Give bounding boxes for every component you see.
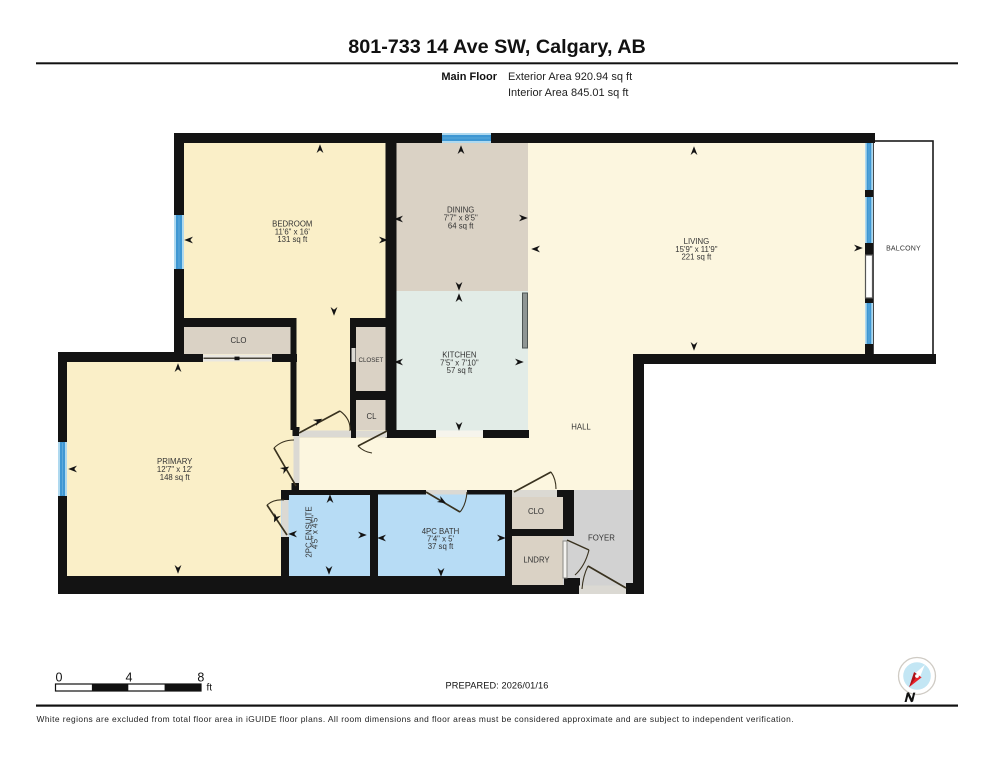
- svg-text:37 sq ft: 37 sq ft: [428, 542, 454, 551]
- svg-text:CLO: CLO: [528, 507, 544, 516]
- svg-text:8: 8: [197, 670, 204, 684]
- svg-text:PREPARED: 2026/01/16: PREPARED: 2026/01/16: [446, 681, 549, 691]
- svg-text:Interior Area 845.01 sq ft: Interior Area 845.01 sq ft: [508, 87, 628, 99]
- svg-text:221 sq ft: 221 sq ft: [681, 253, 712, 262]
- svg-text:ft: ft: [207, 683, 213, 694]
- svg-text:HALL: HALL: [571, 423, 591, 432]
- svg-text:CLO: CLO: [230, 336, 246, 345]
- svg-text:4'5" x 4'5": 4'5" x 4'5": [311, 515, 320, 549]
- svg-text:Exterior Area 920.94 sq ft: Exterior Area 920.94 sq ft: [508, 71, 632, 83]
- svg-text:CLOSET: CLOSET: [359, 357, 384, 364]
- svg-text:148 sq ft: 148 sq ft: [160, 473, 191, 482]
- svg-text:64 sq ft: 64 sq ft: [448, 222, 474, 231]
- svg-text:CL: CL: [367, 412, 378, 421]
- svg-text:131 sq ft: 131 sq ft: [277, 235, 308, 244]
- svg-text:0: 0: [56, 670, 63, 684]
- svg-text:White regions are excluded fro: White regions are excluded from total fl…: [37, 714, 794, 724]
- svg-text:LNDRY: LNDRY: [523, 556, 550, 565]
- svg-text:FOYER: FOYER: [588, 534, 615, 543]
- svg-text:BALCONY: BALCONY: [886, 246, 921, 253]
- svg-text:4: 4: [126, 670, 133, 684]
- svg-text:801-733 14 Ave SW, Calgary, AB: 801-733 14 Ave SW, Calgary, AB: [348, 36, 646, 58]
- svg-text:Main Floor: Main Floor: [441, 71, 497, 83]
- svg-text:57 sq ft: 57 sq ft: [447, 366, 473, 375]
